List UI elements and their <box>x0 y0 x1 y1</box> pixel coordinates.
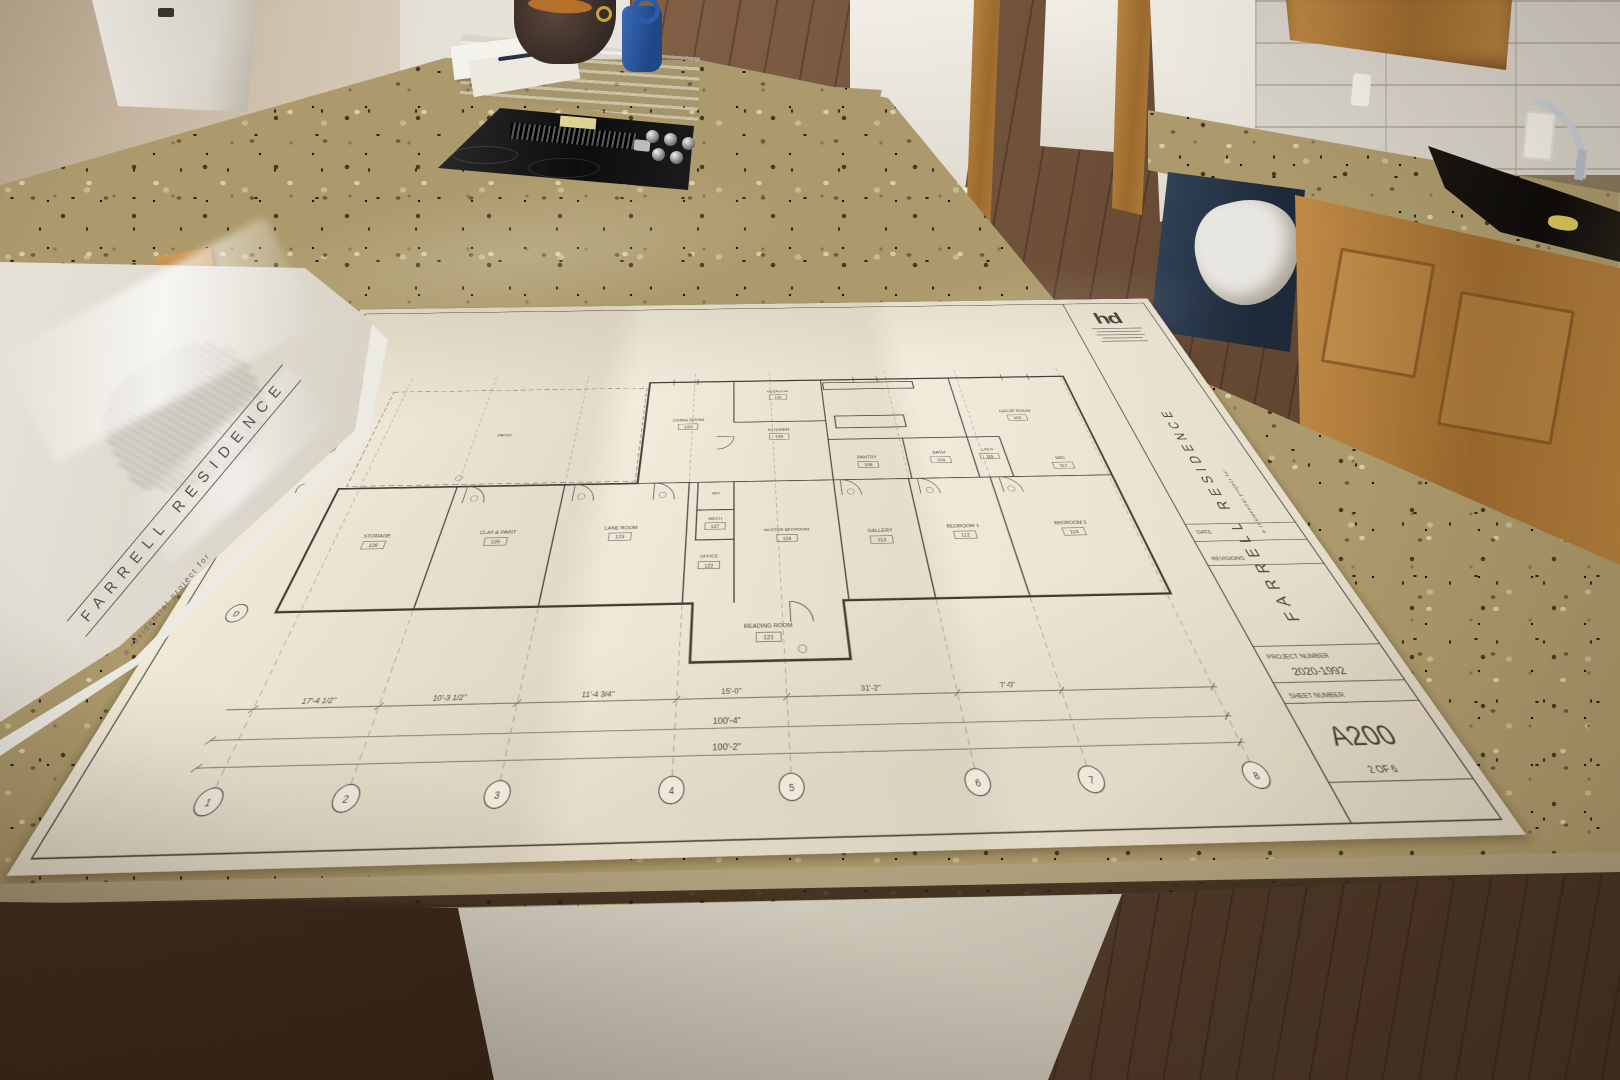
dim-overall-bottom: 100'-2" <box>712 741 741 752</box>
room-number-bedroom-1: 112 <box>961 533 971 538</box>
room-number-reading-room: 121 <box>763 635 774 641</box>
room-number-master-bedroom: 119 <box>783 537 792 542</box>
room-label-pantry: PANTRY <box>857 455 878 459</box>
dim-seg6: 7'-0" <box>999 680 1017 689</box>
room-label-patio: PATIO <box>497 434 512 438</box>
control-knob-1 <box>646 130 659 143</box>
room-label-storage: STORAGE <box>362 534 392 539</box>
room-label-office: OFFICE <box>700 554 718 559</box>
hallway-wall-middle <box>1040 0 1122 152</box>
dim-seg2: 10'-3 1/2" <box>432 693 468 702</box>
photo-canvas: { "scene": { "setting": "new-constructio… <box>0 0 1620 1080</box>
outlet-plate <box>1351 73 1372 106</box>
dim-seg4: 15'-0" <box>721 687 741 696</box>
room-number-gallery: 113 <box>877 538 887 543</box>
room-label-clay-paint: CLAY & PAINT <box>479 530 517 535</box>
room-number-great: 103 <box>1013 416 1022 420</box>
handbag-ring <box>596 6 612 22</box>
room-label-linen: LINEN <box>981 448 994 451</box>
dim-seg3: 11'-4 3/4" <box>581 690 615 699</box>
room-number-clay-paint: 125 <box>490 540 501 545</box>
room-label-wh: WH <box>712 492 720 496</box>
room-label-bath: BATH <box>932 451 946 455</box>
room-label-wic: WIC <box>1055 456 1066 460</box>
cooktop-burner-ring-2 <box>528 158 600 178</box>
white-door <box>92 0 258 115</box>
project-number-value: 2020-1992 <box>1289 664 1349 678</box>
room-label-living: LIVING ROOM <box>672 418 704 422</box>
dim-seg1: 17'-4 1/2" <box>300 696 338 706</box>
sheet-number-label: SHEET NUMBER <box>1287 690 1347 700</box>
room-label-gallery: GALLERY <box>867 529 893 534</box>
cabinet-door-panel-1 <box>1321 248 1436 379</box>
room-label-bedroom-2: BEDROOM 2 <box>1054 521 1088 526</box>
room-number-pantry: 108 <box>864 463 873 467</box>
cooktop-burner-ring-1 <box>452 146 518 164</box>
room-label-kitchen: KITCHEN <box>768 428 789 432</box>
room-label-great: GREAT ROOM <box>999 409 1032 413</box>
room-number-office: 122 <box>704 564 713 569</box>
revisions-label: REVISIONS <box>1210 555 1246 562</box>
door-hinge <box>158 8 174 17</box>
control-knob-3 <box>682 137 695 150</box>
grid-num-4: 4 <box>668 785 674 797</box>
room-label-reading-room: READING ROOM <box>744 623 793 630</box>
control-knob-5 <box>670 151 683 164</box>
room-number-mech: 127 <box>711 525 720 530</box>
room-number-mudroom: 109 <box>774 396 782 399</box>
grid-num-5: 5 <box>789 782 795 794</box>
room-number-living: 100 <box>684 426 692 430</box>
control-knob-4 <box>652 148 665 161</box>
room-number-lane-room: 123 <box>615 535 625 540</box>
room-label-lane-room: LANE ROOM <box>604 526 638 531</box>
room-number-bath: 104 <box>936 458 946 462</box>
room-label-mudroom: MUDROOM <box>767 390 788 393</box>
room-label-bedroom-1: BEDROOM 1 <box>946 524 980 529</box>
dim-seg5: 31'-2" <box>860 684 881 693</box>
room-label-mech: MECH <box>708 517 722 521</box>
cabinet-door-panel-2 <box>1437 291 1575 445</box>
project-number-label: PROJECT NUMBER <box>1265 652 1331 661</box>
control-knob-2 <box>664 133 677 146</box>
dim-overall-top: 100'-4" <box>713 715 741 726</box>
room-number-kitchen: 105 <box>775 435 783 439</box>
